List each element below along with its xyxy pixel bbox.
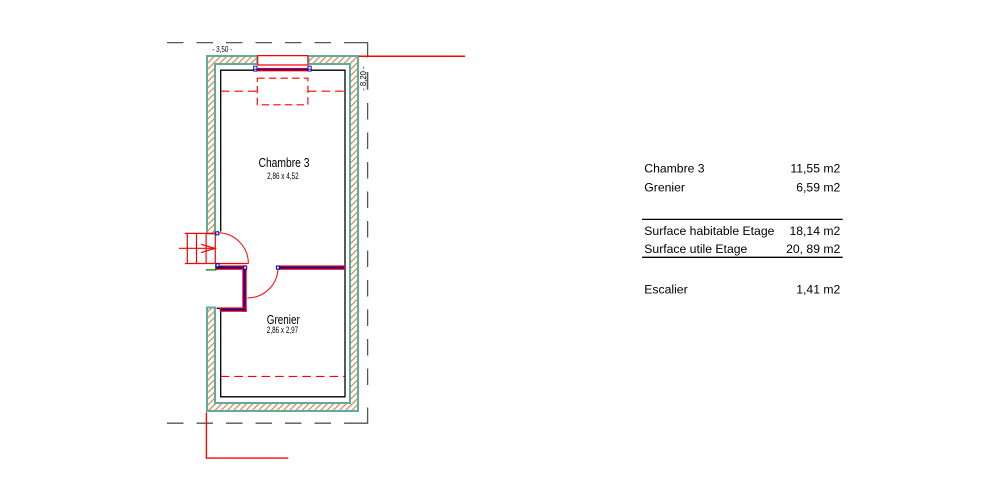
svg-text:1,41 m2: 1,41 m2 xyxy=(796,282,840,296)
svg-text:Escalier: Escalier xyxy=(644,282,687,296)
svg-text:2,86 x 2,97: 2,86 x 2,97 xyxy=(267,325,298,335)
svg-text:18,14 m2: 18,14 m2 xyxy=(789,224,840,238)
svg-text:20, 89 m2: 20, 89 m2 xyxy=(786,242,840,256)
svg-text:Surface habitable Etage: Surface habitable Etage xyxy=(644,224,774,238)
svg-text:Grenier: Grenier xyxy=(644,181,685,195)
svg-text:Chambre 3: Chambre 3 xyxy=(644,161,705,175)
svg-text:11,55 m2: 11,55 m2 xyxy=(790,161,840,175)
svg-text:- 3,50 -: - 3,50 - xyxy=(212,45,232,54)
svg-text:Surface utile Etage: Surface utile Etage xyxy=(644,242,747,256)
svg-text:2,86 x 4,52: 2,86 x 4,52 xyxy=(267,171,299,181)
svg-text:- 8,20 -: - 8,20 - xyxy=(359,66,368,91)
svg-text:Chambre 3: Chambre 3 xyxy=(259,155,310,170)
svg-text:6,59 m2: 6,59 m2 xyxy=(796,181,840,195)
